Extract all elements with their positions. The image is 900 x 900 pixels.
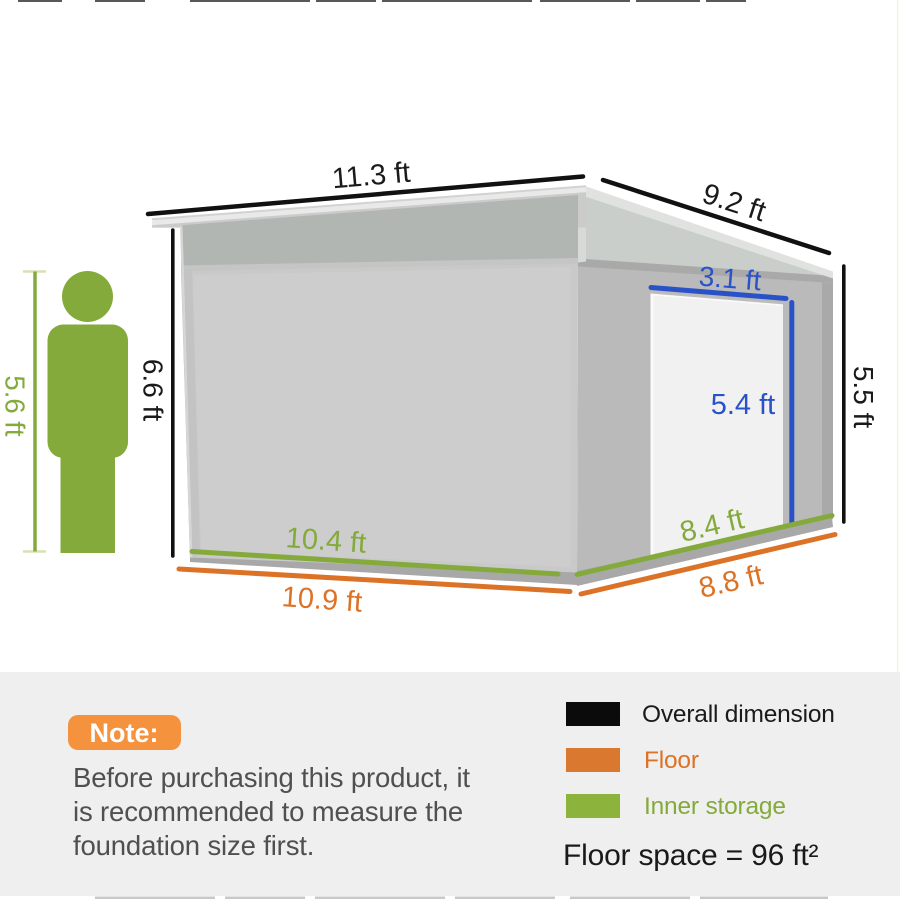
svg-text:5.6 ft: 5.6 ft bbox=[0, 375, 31, 437]
svg-text:Floor: Floor bbox=[644, 747, 699, 774]
svg-text:10.9 ft: 10.9 ft bbox=[281, 581, 364, 619]
svg-text:Inner storage: Inner storage bbox=[644, 793, 786, 820]
svg-text:11.3 ft: 11.3 ft bbox=[331, 157, 412, 196]
svg-text:5.5 ft: 5.5 ft bbox=[848, 366, 879, 428]
svg-text:3.1 ft: 3.1 ft bbox=[698, 261, 763, 297]
svg-text:10.4 ft: 10.4 ft bbox=[285, 522, 368, 560]
svg-text:is recommended to measure the: is recommended to measure the bbox=[73, 796, 463, 827]
svg-text:Floor space = 96 ft²: Floor space = 96 ft² bbox=[563, 839, 819, 872]
svg-text:Note:: Note: bbox=[90, 718, 159, 748]
svg-text:Before purchasing this product: Before purchasing this product, it bbox=[73, 762, 470, 793]
svg-text:5.4 ft: 5.4 ft bbox=[711, 389, 776, 421]
svg-text:Overall dimension: Overall dimension bbox=[642, 701, 835, 728]
svg-text:6.6 ft: 6.6 ft bbox=[138, 359, 169, 421]
svg-text:foundation size first.: foundation size first. bbox=[73, 830, 314, 861]
